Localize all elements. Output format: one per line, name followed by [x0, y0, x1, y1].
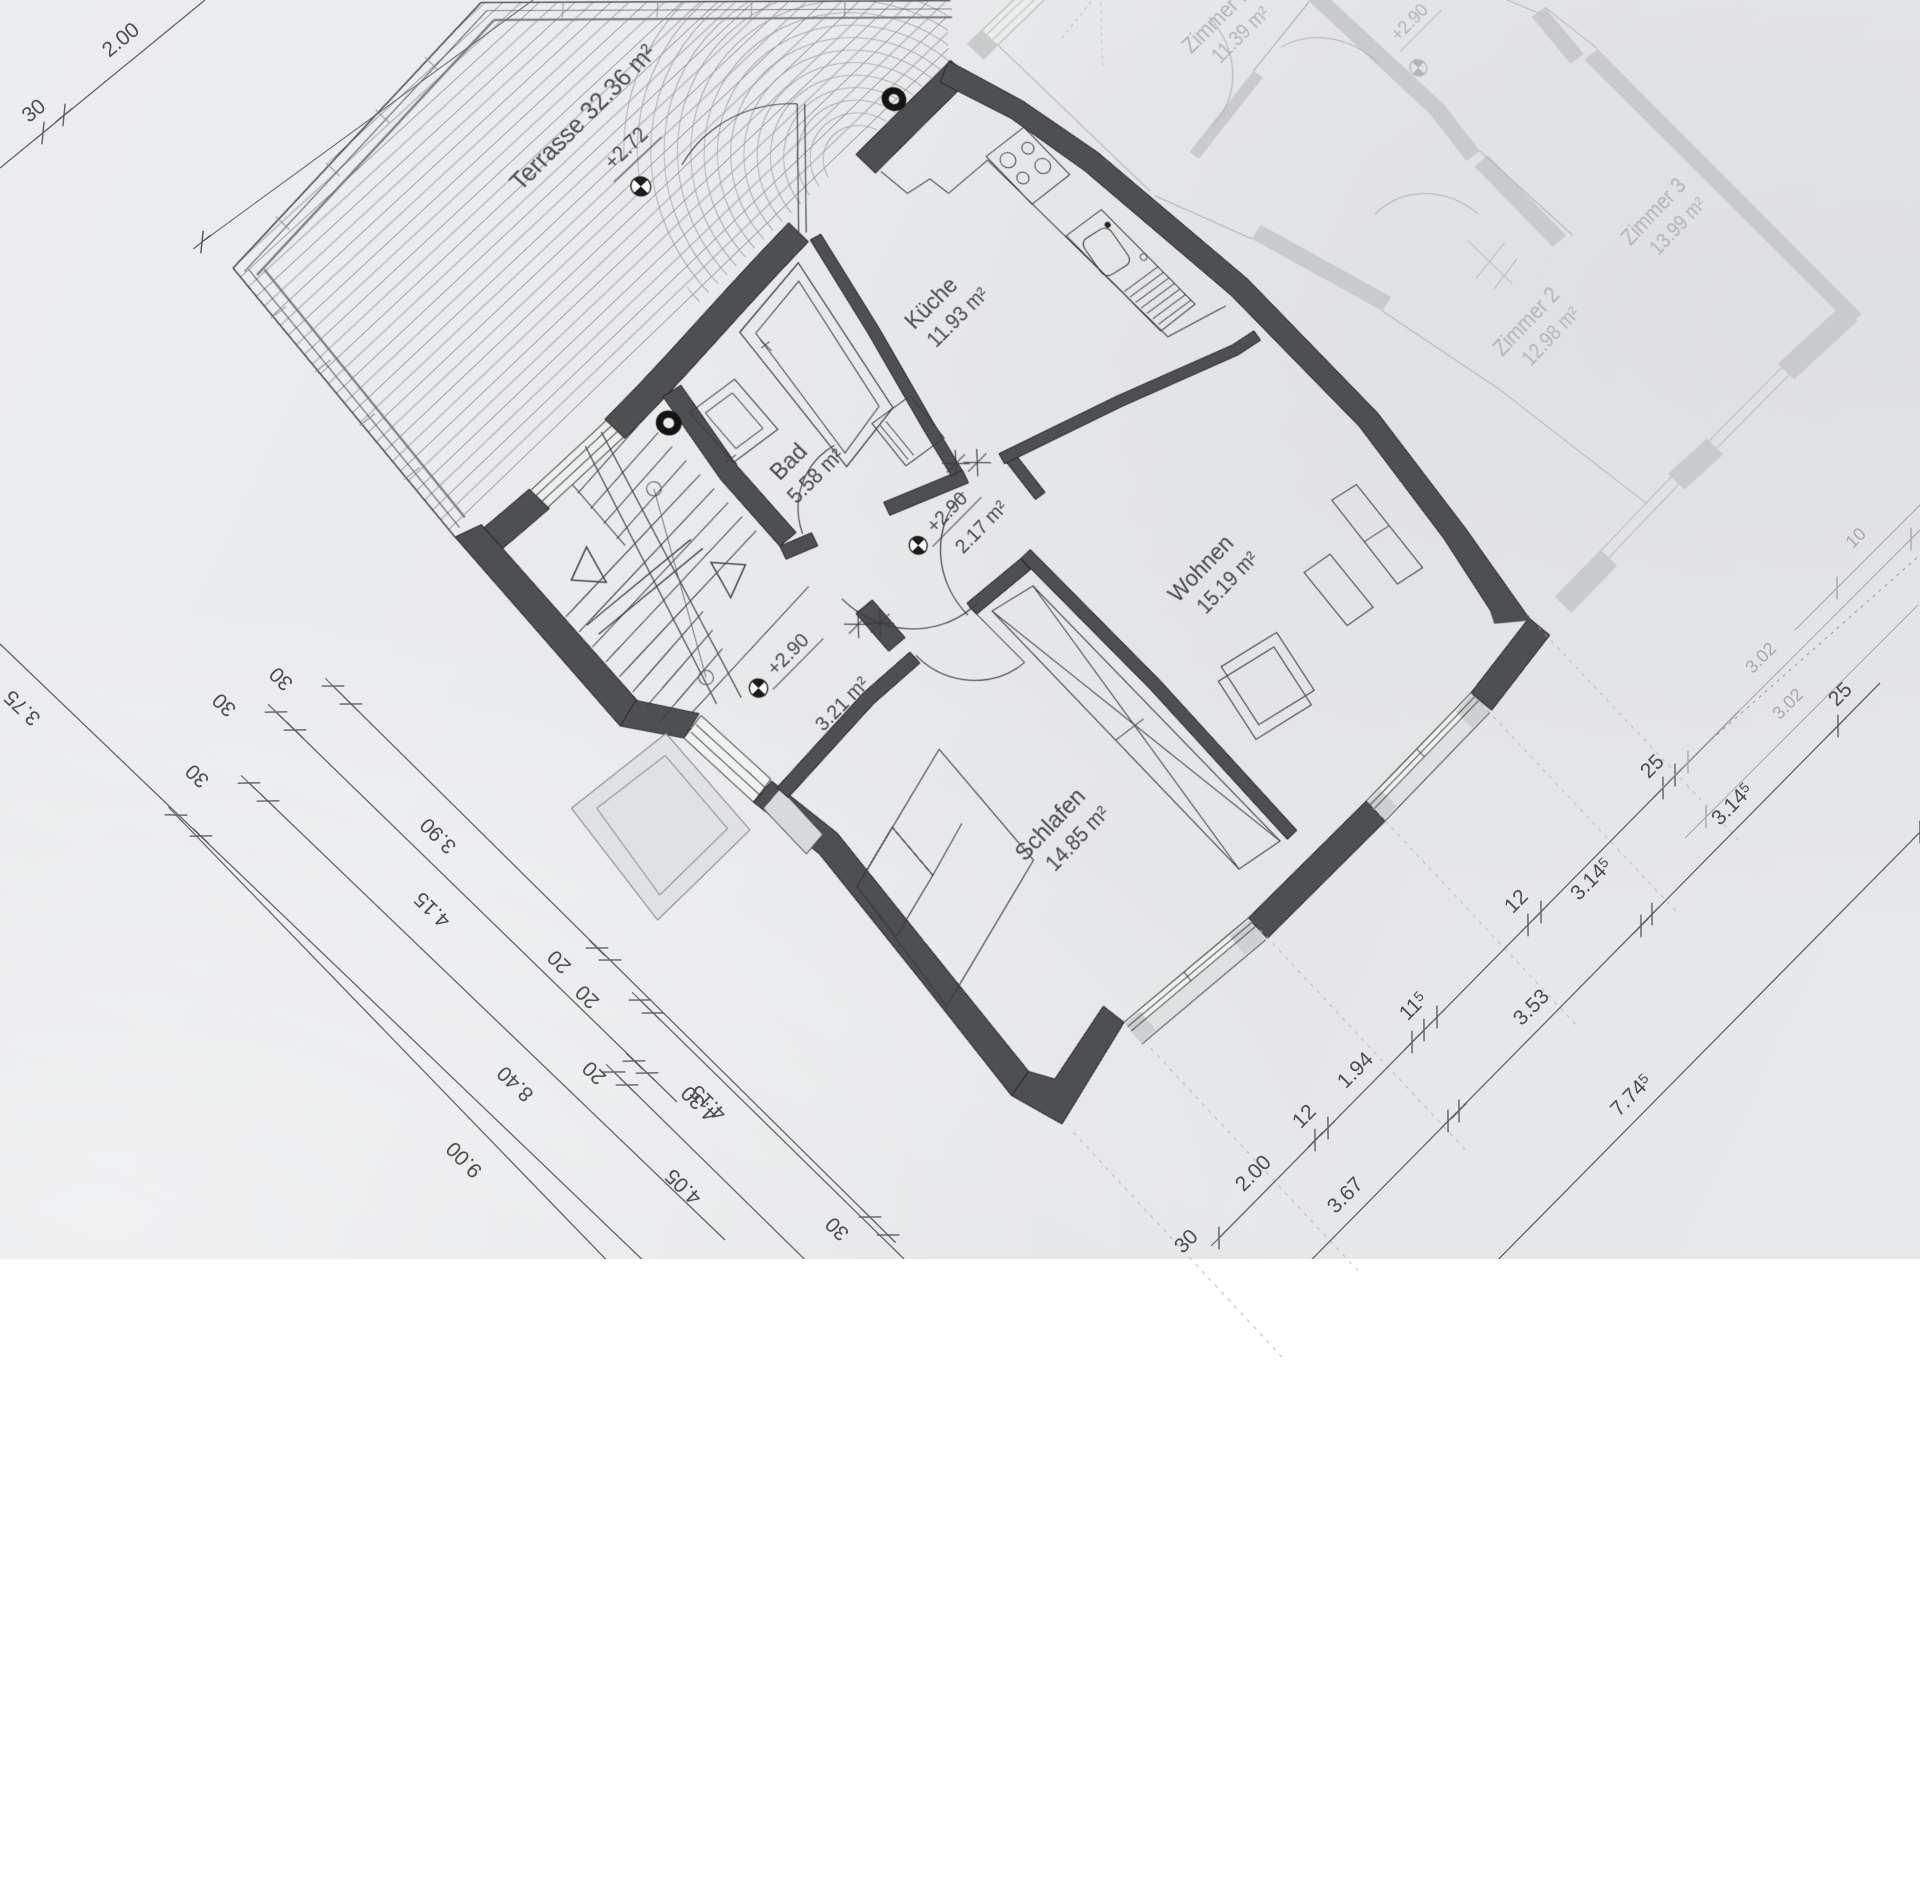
svg-text:10: 10	[1842, 524, 1870, 552]
svg-text:3.90: 3.90	[416, 813, 461, 858]
svg-text:20: 20	[543, 945, 576, 978]
svg-text:3.75: 3.75	[0, 685, 45, 730]
svg-text:30: 30	[181, 759, 214, 792]
svg-text:1.94: 1.94	[1333, 1048, 1378, 1093]
svg-text:30: 30	[1170, 1225, 1203, 1258]
svg-text:4.05: 4.05	[661, 1164, 706, 1209]
svg-text:4.15: 4.15	[410, 887, 455, 932]
svg-text:7.745: 7.745	[1606, 1070, 1657, 1121]
svg-text:3.145: 3.145	[1707, 779, 1758, 830]
svg-text:30: 30	[265, 662, 298, 695]
svg-text:2.00: 2.00	[1231, 1151, 1276, 1196]
svg-text:12: 12	[1500, 885, 1533, 918]
svg-text:3.67: 3.67	[1323, 1173, 1368, 1218]
svg-text:30: 30	[821, 1212, 854, 1245]
svg-text:9.00: 9.00	[442, 1137, 487, 1182]
svg-text:30: 30	[18, 95, 51, 128]
svg-text:3.02: 3.02	[1768, 684, 1807, 723]
svg-text:3.02: 3.02	[1741, 638, 1780, 677]
svg-text:12: 12	[1288, 1100, 1321, 1133]
svg-text:25: 25	[1636, 750, 1669, 783]
svg-text:3.53: 3.53	[1509, 985, 1554, 1030]
svg-text:115: 115	[1395, 988, 1432, 1025]
svg-text:20: 20	[571, 980, 604, 1013]
svg-text:30: 30	[208, 688, 241, 721]
svg-text:8.40: 8.40	[493, 1061, 538, 1106]
